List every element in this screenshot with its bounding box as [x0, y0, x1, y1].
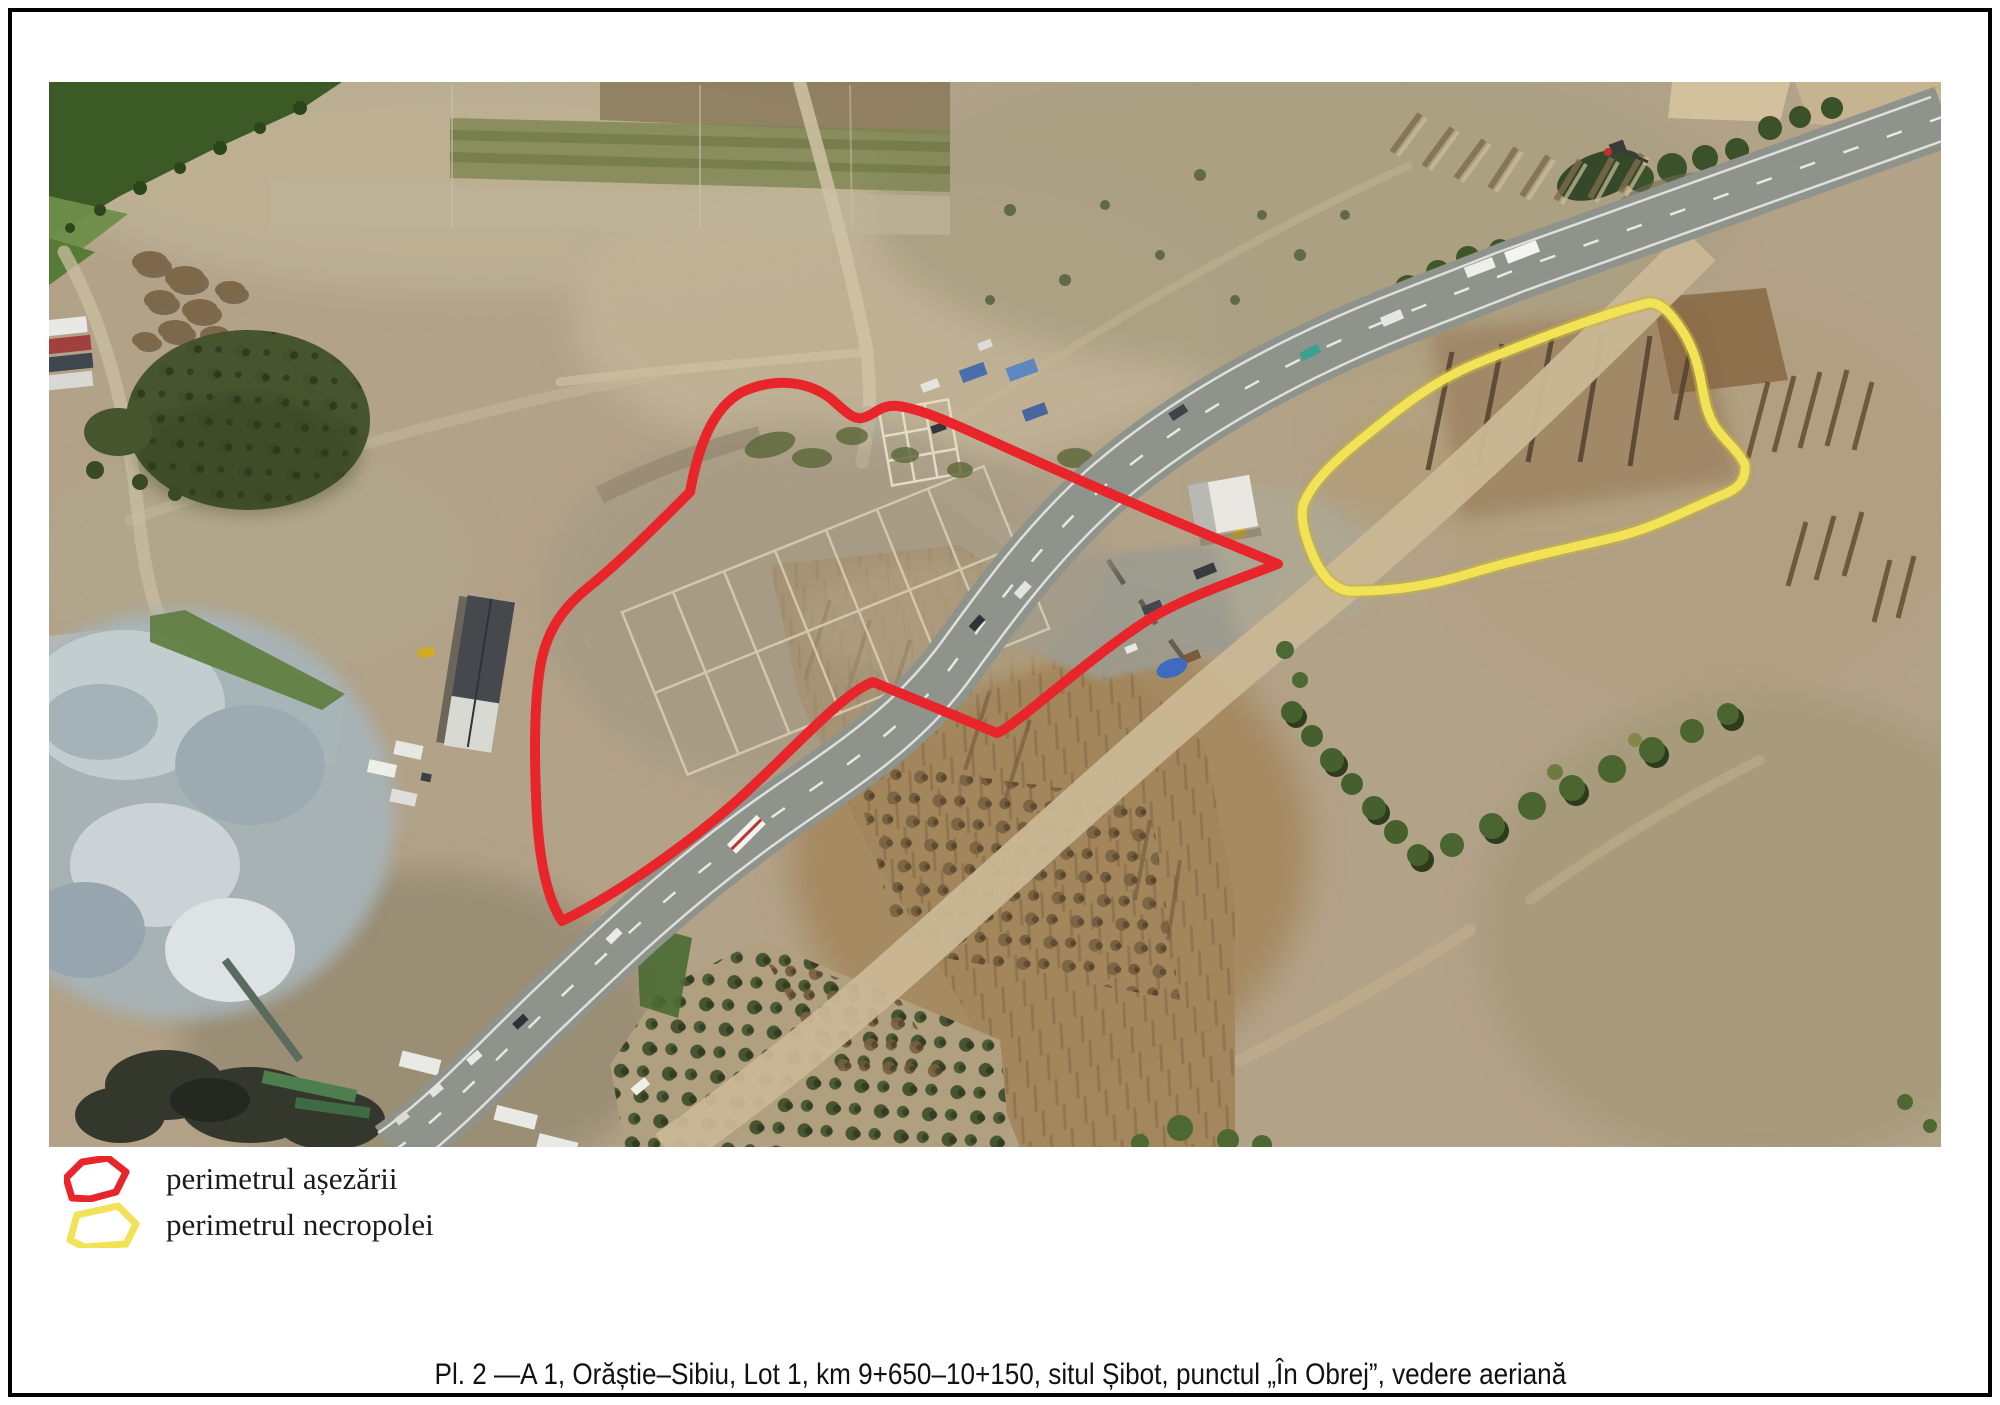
legend-item-necropolis: perimetrul necropolei	[64, 1202, 434, 1248]
legend-item-settlement: perimetrul așezării	[64, 1156, 434, 1202]
settlement-perimeter-swatch-icon	[64, 1156, 144, 1202]
figure-caption-text: Pl. 2 —A 1, Orăștie–Sibiu, Lot 1, km 9+6…	[434, 1358, 1566, 1392]
legend-label-necropolis: perimetrul necropolei	[166, 1207, 434, 1243]
necropolis-perimeter-swatch-icon	[64, 1202, 144, 1248]
page: { "figure": { "caption": "Pl. 2 —A 1, Or…	[0, 0, 2000, 1405]
aerial-photo-canvas	[49, 82, 1941, 1147]
aerial-photo	[49, 82, 1941, 1147]
figure-caption: Pl. 2 —A 1, Orăștie–Sibiu, Lot 1, km 9+6…	[0, 1358, 2000, 1392]
legend-label-settlement: perimetrul așezării	[166, 1161, 398, 1197]
legend: perimetrul așezării perimetrul necropole…	[64, 1156, 434, 1248]
